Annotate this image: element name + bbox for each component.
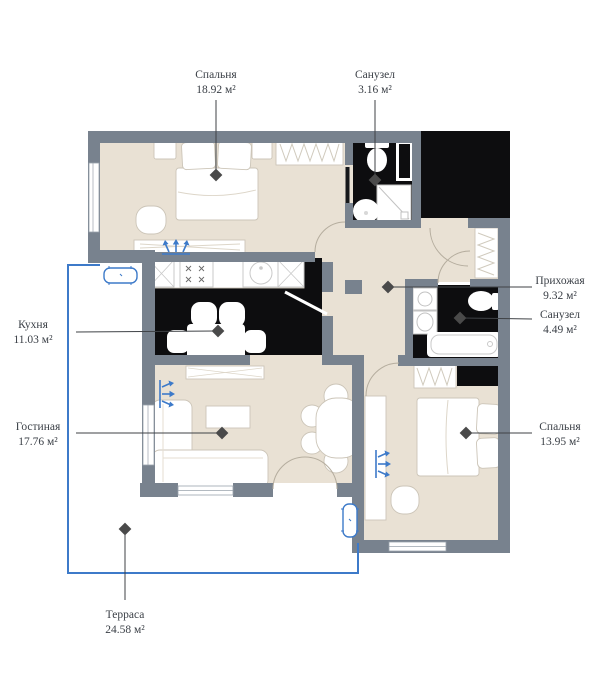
room-label-bedroom-1: Спальня 18.92 м² — [156, 68, 276, 97]
room-name: Спальня — [156, 68, 276, 83]
room-name: Санузел — [315, 68, 435, 83]
window — [143, 405, 154, 465]
room-area: 18.92 м² — [156, 83, 276, 98]
room-area: 4.49 м² — [522, 323, 598, 338]
bedroom-2-niche — [457, 364, 500, 386]
room-name: Спальня — [522, 420, 598, 435]
wall — [345, 280, 362, 294]
room-area: 3.16 м² — [315, 83, 435, 98]
chair-icon — [244, 330, 266, 353]
nightstand-icon — [252, 141, 272, 159]
room-area: 13.95 м² — [522, 435, 598, 450]
planter-icon — [104, 268, 137, 283]
shaft-niche-inner — [399, 144, 410, 178]
wall — [412, 131, 421, 228]
room-label-terrace: Терраса 24.58 м² — [75, 608, 175, 637]
room-name: Гостиная — [2, 420, 74, 435]
room-label-kitchen: Кухня 11.03 м² — [2, 318, 64, 347]
wall — [322, 262, 333, 292]
shower-drain — [401, 212, 408, 219]
pillow-icon — [217, 141, 251, 170]
wall — [405, 358, 503, 366]
floor-plan-page: Спальня 18.92 м² Санузел 3.16 м² Прихожа… — [0, 0, 600, 700]
service-shaft-area — [421, 131, 510, 218]
entry-threshold — [421, 218, 468, 230]
wall — [470, 279, 498, 287]
wall — [330, 355, 364, 365]
sink-tap — [259, 266, 263, 270]
window — [89, 163, 99, 232]
wall — [405, 282, 413, 365]
room-label-bathroom-2: Санузел 4.49 м² — [522, 308, 598, 337]
pillow-icon — [181, 141, 215, 170]
wall — [140, 483, 178, 497]
room-area: 24.58 м² — [75, 623, 175, 638]
sofa-icon — [152, 450, 268, 488]
room-label-bathroom-1: Санузел 3.16 м² — [315, 68, 435, 97]
wall — [498, 218, 510, 553]
wall — [233, 483, 273, 497]
hallway-floor — [345, 228, 410, 265]
wall — [337, 483, 364, 497]
bathroom-1-door-leaf — [346, 167, 350, 203]
hob-icon — [180, 260, 213, 287]
armchair-icon — [391, 486, 419, 514]
bathtub-icon — [427, 332, 501, 357]
wall — [398, 355, 408, 366]
room-label-bedroom-2: Спальня 13.95 м² — [522, 420, 598, 449]
room-name: Санузел — [522, 308, 598, 323]
coffee-table-icon — [206, 406, 250, 428]
room-area: 9.32 м² — [522, 289, 598, 304]
room-label-living-room: Гостиная 17.76 м² — [2, 420, 74, 449]
chair-icon — [219, 302, 245, 327]
room-name: Кухня — [2, 318, 64, 333]
toilet-tank — [492, 293, 499, 310]
room-label-hallway: Прихожая 9.32 м² — [522, 274, 598, 303]
marker-diamond — [119, 523, 132, 536]
room-name: Прихожая — [522, 274, 598, 289]
bed-icon — [417, 398, 479, 476]
room-name: Терраса — [75, 608, 175, 623]
kitchen-sink-icon — [243, 260, 278, 287]
toilet-icon — [367, 148, 387, 172]
chair-icon — [191, 302, 217, 327]
hall-wardrobe-icon — [475, 228, 498, 278]
sink-drain — [364, 211, 368, 215]
chair-icon — [167, 330, 189, 353]
washing-machine-icon — [413, 288, 437, 310]
floor-plan-drawing — [0, 0, 600, 700]
hallway-floor — [333, 262, 410, 365]
room-area: 11.03 м² — [2, 333, 64, 348]
wall — [345, 220, 421, 228]
room-area: 17.76 м² — [2, 435, 74, 450]
pillow-icon — [476, 437, 501, 468]
wall — [142, 355, 250, 365]
nightstand-icon — [154, 141, 176, 159]
armchair-icon — [136, 206, 166, 234]
pillow-icon — [476, 403, 501, 434]
toilet-icon — [468, 291, 494, 311]
wall — [88, 131, 421, 143]
